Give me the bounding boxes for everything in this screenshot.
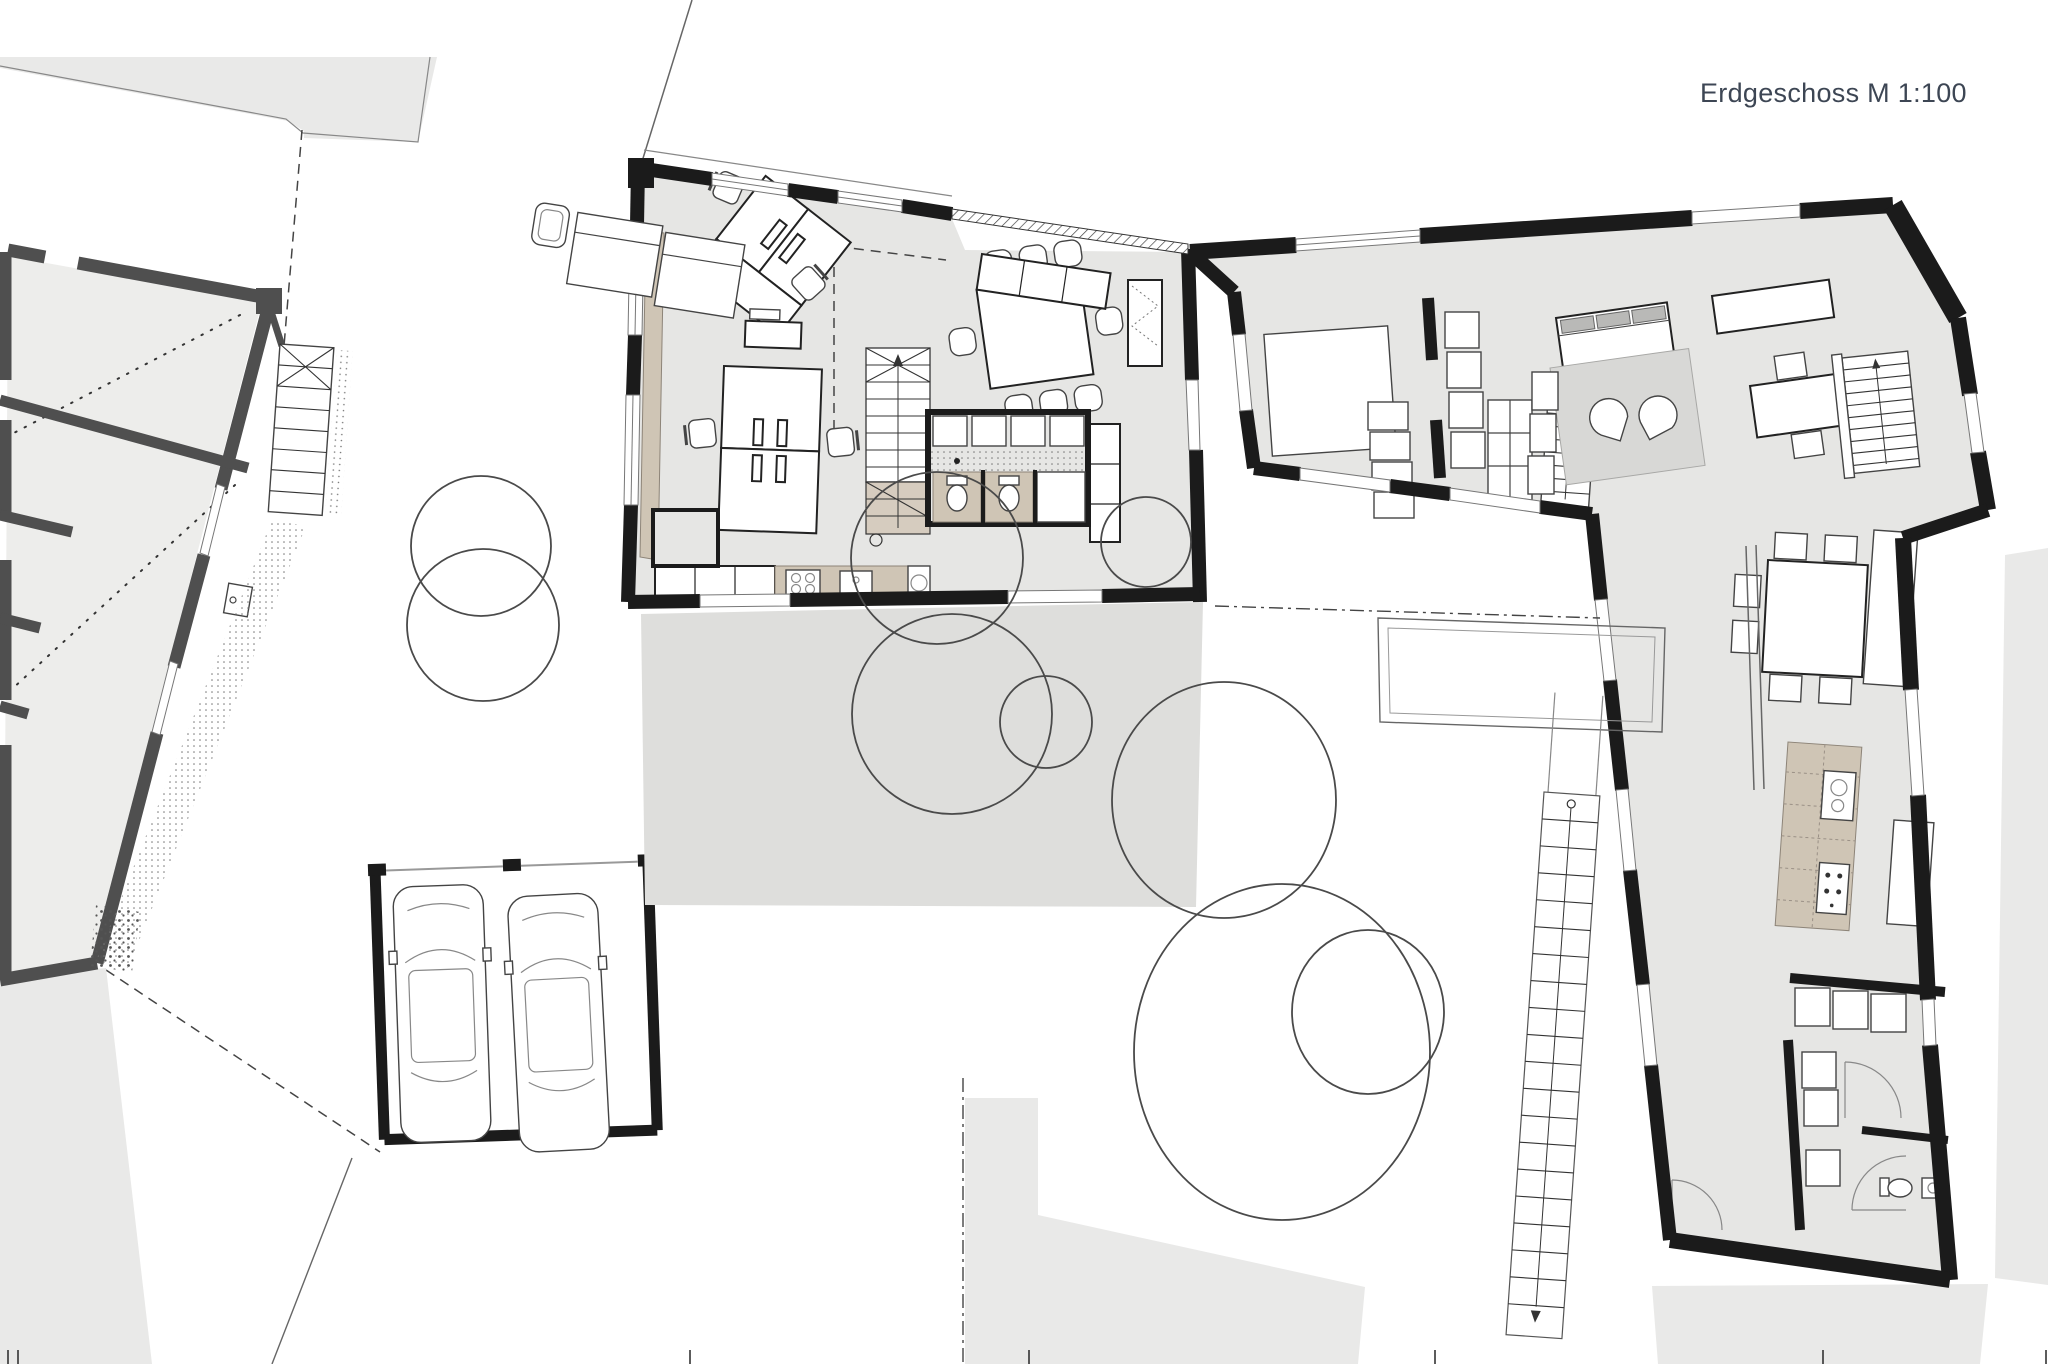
chair-icon <box>1824 535 1857 563</box>
driveway-edge-line <box>272 1158 352 1364</box>
wc-floor-dots <box>930 450 1086 472</box>
toilet-icon <box>1880 1178 1912 1197</box>
office-stair-icon <box>866 348 930 546</box>
right-building <box>1190 205 1988 1280</box>
monitor-icon <box>752 455 762 481</box>
garage <box>368 854 664 1158</box>
terrace <box>641 602 1203 907</box>
terrace-dashdot-line <box>1215 606 1600 618</box>
external-stair-icon <box>1506 692 1607 1338</box>
chair-icon <box>1819 677 1852 705</box>
living-rug <box>1550 349 1705 485</box>
tree-icon <box>411 476 551 616</box>
left-external-stair-icon <box>268 344 353 517</box>
tree-icon <box>407 549 559 701</box>
car-icon <box>387 884 498 1143</box>
shelf-pair <box>1488 400 1532 500</box>
parcel-line <box>640 0 692 168</box>
wc-block <box>928 412 1088 524</box>
wardrobe <box>1128 280 1162 366</box>
monitor-icon <box>753 419 763 445</box>
gravel-patch <box>90 905 140 972</box>
wc-stall <box>1037 472 1085 522</box>
shelf-column <box>1528 372 1558 494</box>
site-garden-right <box>1995 548 2048 1285</box>
kitchen-island <box>1775 742 1862 931</box>
site-path-bottomcenter <box>965 1098 1038 1364</box>
shelf-stack <box>1368 402 1414 518</box>
hob-icon <box>786 570 820 596</box>
site-path-bottomright <box>1652 1284 1988 1364</box>
site-parcel-topleft <box>0 57 437 142</box>
floor-plan-canvas: Erdgeschoss M 1:100 <box>0 0 2048 1364</box>
chair-icon <box>1769 674 1802 702</box>
tree-icon <box>1292 930 1444 1094</box>
site-path-bottomcenter2 <box>1038 1215 1365 1364</box>
car-icon <box>501 892 616 1153</box>
site-parcel-bottomleft <box>0 968 152 1364</box>
chair-icon <box>1774 352 1807 380</box>
living-stair-icon <box>1832 347 1921 478</box>
page-title: Erdgeschoss M 1:100 <box>1700 78 1967 108</box>
monitor-icon <box>776 456 786 482</box>
left-building-floor <box>4 256 262 974</box>
left-building <box>0 250 353 980</box>
chair-icon <box>1791 431 1824 459</box>
driveway-dashed-line <box>106 970 380 1152</box>
storage-room <box>653 510 718 566</box>
center-building <box>524 150 1200 607</box>
chair-icon <box>1731 620 1759 653</box>
chair-icon <box>1774 532 1807 560</box>
monitor-icon <box>777 420 787 446</box>
left-building-corner <box>256 288 282 314</box>
tree-icon <box>1134 884 1430 1220</box>
